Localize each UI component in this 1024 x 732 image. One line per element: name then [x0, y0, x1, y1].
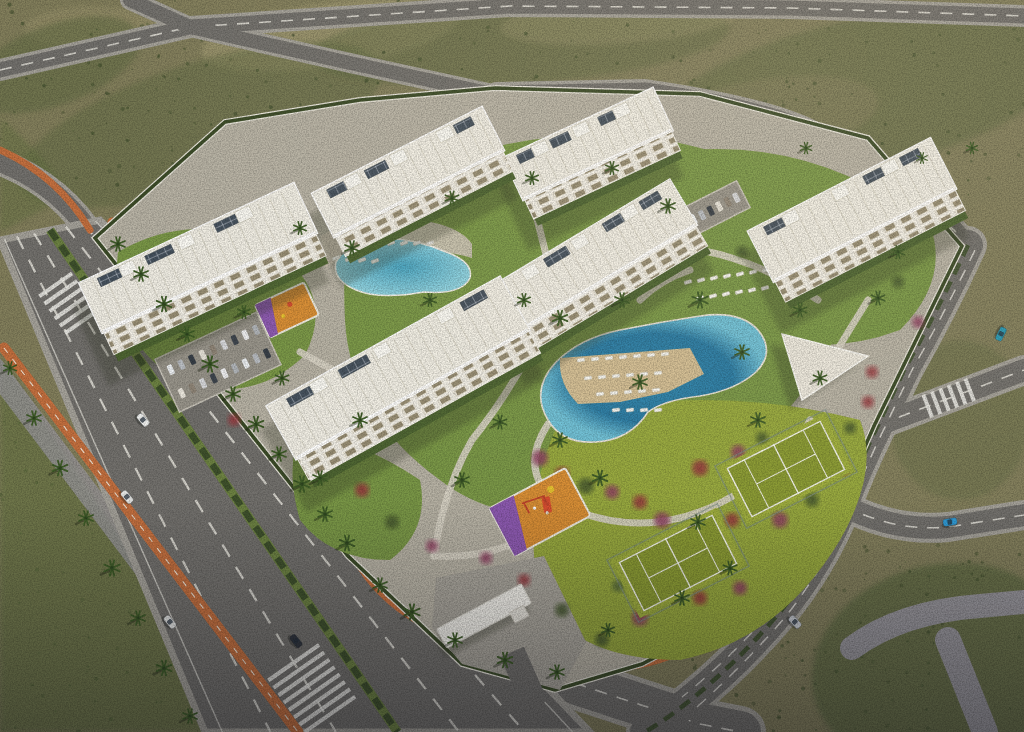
aerial-render [0, 0, 1024, 732]
film-grain [0, 0, 1024, 732]
scene-svg [0, 0, 1024, 732]
